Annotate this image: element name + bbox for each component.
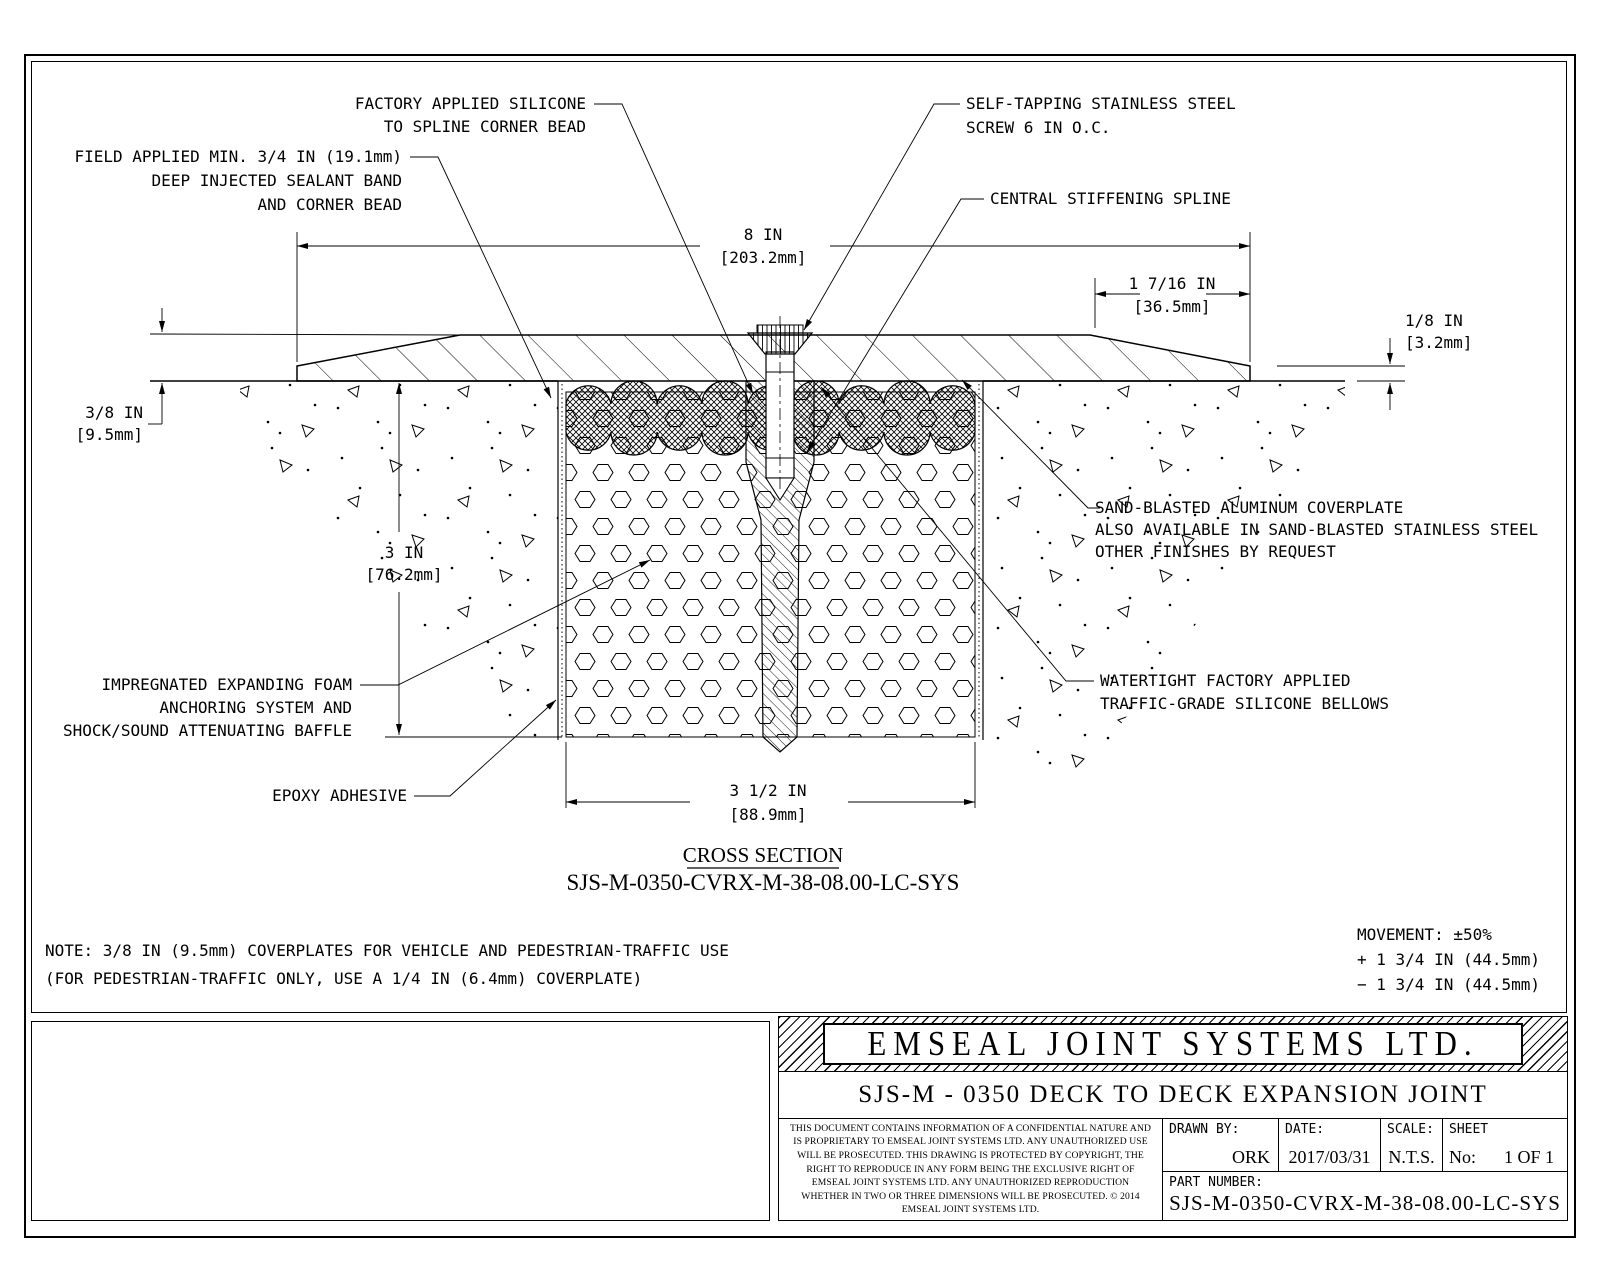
svg-text:SAND-BLASTED ALUMINUM COVERPLA: SAND-BLASTED ALUMINUM COVERPLATE	[1095, 498, 1403, 517]
svg-text:CENTRAL STIFFENING SPLINE: CENTRAL STIFFENING SPLINE	[990, 189, 1231, 208]
drawing-title-row: SJS-M - 0350 DECK TO DECK EXPANSION JOIN…	[778, 1072, 1568, 1119]
svg-text:SHOCK/SOUND ATTENUATING BAFFLE: SHOCK/SOUND ATTENUATING BAFFLE	[63, 721, 352, 740]
callout-screw: SELF-TAPPING STAINLESS STEEL SCREW 6 IN …	[966, 94, 1236, 137]
callout-spline: CENTRAL STIFFENING SPLINE	[990, 189, 1231, 208]
scale-value: N.T.S.	[1381, 1147, 1442, 1168]
sheet-no-label: No:	[1449, 1147, 1476, 1168]
confidentiality-cell: THIS DOCUMENT CONTAINS INFORMATION OF A …	[779, 1119, 1163, 1220]
company-name: EMSEAL JOINT SYSTEMS LTD.	[867, 1024, 1478, 1064]
revision-box	[31, 1021, 770, 1221]
title-block-fields: DRAWN BY: ORK DATE: 2017/03/31 SCALE: N.…	[1163, 1119, 1567, 1220]
callout-factory-silicone: FACTORY APPLIED SILICONE TO SPLINE CORNE…	[355, 94, 586, 136]
company-banner: EMSEAL JOINT SYSTEMS LTD.	[778, 1016, 1568, 1072]
callout-field-sealant: FIELD APPLIED MIN. 3/4 IN (19.1mm) DEEP …	[74, 147, 402, 214]
dimension-joint-width: 3 1/2 IN [88.9mm]	[566, 742, 975, 824]
scale-label: SCALE:	[1387, 1122, 1436, 1137]
svg-text:ALSO AVAILABLE IN SAND-BLASTED: ALSO AVAILABLE IN SAND-BLASTED STAINLESS…	[1095, 520, 1538, 539]
svg-text:FACTORY APPLIED SILICONE: FACTORY APPLIED SILICONE	[355, 94, 586, 113]
svg-text:EPOXY ADHESIVE: EPOXY ADHESIVE	[272, 786, 407, 805]
svg-text:SCREW 6 IN O.C.: SCREW 6 IN O.C.	[966, 118, 1111, 137]
title-block: EMSEAL JOINT SYSTEMS LTD. SJS-M - 0350 D…	[778, 1016, 1568, 1221]
callout-epoxy: EPOXY ADHESIVE	[272, 786, 407, 805]
svg-text:[36.5mm]: [36.5mm]	[1133, 297, 1210, 316]
svg-text:+ 1 3/4 IN (44.5mm): + 1 3/4 IN (44.5mm)	[1357, 950, 1540, 969]
svg-text:− 1 3/4 IN (44.5mm): − 1 3/4 IN (44.5mm)	[1357, 975, 1540, 994]
title-block-grid: THIS DOCUMENT CONTAINS INFORMATION OF A …	[778, 1119, 1568, 1221]
svg-text:[88.9mm]: [88.9mm]	[729, 805, 806, 824]
svg-text:[76.2mm]: [76.2mm]	[365, 565, 442, 584]
date-label: DATE:	[1285, 1122, 1374, 1137]
meta-row: DRAWN BY: ORK DATE: 2017/03/31 SCALE: N.…	[1163, 1119, 1567, 1172]
svg-text:3/8 IN: 3/8 IN	[85, 403, 143, 422]
svg-text:[3.2mm]: [3.2mm]	[1405, 333, 1472, 352]
drawn-by-cell: DRAWN BY: ORK	[1163, 1119, 1279, 1171]
cross-section-drawing: 8 IN [203.2mm] 1 7/16 IN [36.5mm] 1/8 IN…	[0, 0, 1600, 1015]
callout-coverplate: SAND-BLASTED ALUMINUM COVERPLATE ALSO AV…	[1095, 498, 1538, 561]
svg-text:CROSS SECTION: CROSS SECTION	[683, 843, 843, 867]
sheet-number-row: No: 1 OF 1	[1449, 1137, 1561, 1168]
svg-text:8 IN: 8 IN	[744, 225, 783, 244]
svg-text:FIELD APPLIED MIN. 3/4 IN (19.: FIELD APPLIED MIN. 3/4 IN (19.1mm)	[74, 147, 402, 166]
svg-text:[9.5mm]: [9.5mm]	[76, 425, 143, 444]
callout-foam: IMPREGNATED EXPANDING FOAM ANCHORING SYS…	[63, 675, 352, 740]
part-number-value: SJS-M-0350-CVRX-M-38-08.00-LC-SYS	[1163, 1191, 1567, 1216]
scale-cell: SCALE: N.T.S.	[1381, 1119, 1443, 1171]
company-banner-inner: EMSEAL JOINT SYSTEMS LTD.	[823, 1023, 1523, 1065]
drawn-by-label: DRAWN BY:	[1169, 1122, 1272, 1137]
svg-text:ANCHORING SYSTEM AND: ANCHORING SYSTEM AND	[159, 698, 352, 717]
svg-text:TO SPLINE CORNER BEAD: TO SPLINE CORNER BEAD	[384, 117, 586, 136]
drawn-by-value: ORK	[1232, 1147, 1270, 1168]
svg-text:TRAFFIC-GRADE SILICONE BELLOWS: TRAFFIC-GRADE SILICONE BELLOWS	[1100, 694, 1389, 713]
svg-text:SELF-TAPPING STAINLESS STEEL: SELF-TAPPING STAINLESS STEEL	[966, 94, 1236, 113]
movement-text: MOVEMENT: ±50% + 1 3/4 IN (44.5mm) − 1 3…	[1357, 925, 1540, 994]
svg-text:OTHER FINISHES BY REQUEST: OTHER FINISHES BY REQUEST	[1095, 542, 1336, 561]
svg-text:(FOR PEDESTRIAN-TRAFFIC ONLY,: (FOR PEDESTRIAN-TRAFFIC ONLY, USE A 1/4 …	[45, 969, 642, 988]
part-number-cell: PART NUMBER: SJS-M-0350-CVRX-M-38-08.00-…	[1163, 1172, 1567, 1220]
svg-text:1 7/16 IN: 1 7/16 IN	[1129, 274, 1216, 293]
concrete-deck-right	[983, 381, 1345, 772]
svg-text:3 1/2 IN: 3 1/2 IN	[729, 781, 806, 800]
drawing-title: SJS-M - 0350 DECK TO DECK EXPANSION JOIN…	[858, 1081, 1488, 1109]
drawing-sheet: 8 IN [203.2mm] 1 7/16 IN [36.5mm] 1/8 IN…	[0, 0, 1600, 1280]
svg-text:3 IN: 3 IN	[385, 543, 424, 562]
svg-text:[203.2mm]: [203.2mm]	[720, 248, 807, 267]
confidentiality-text: THIS DOCUMENT CONTAINS INFORMATION OF A …	[789, 1122, 1152, 1217]
leader-screw	[804, 104, 960, 330]
svg-text:MOVEMENT: ±50%: MOVEMENT: ±50%	[1357, 925, 1492, 944]
dimension-taper-width: 1 7/16 IN [36.5mm]	[1095, 274, 1250, 328]
svg-text:NOTE: 3/8 IN (9.5mm) COVERPLAT: NOTE: 3/8 IN (9.5mm) COVERPLATES FOR VEH…	[45, 941, 729, 960]
svg-text:1/8 IN: 1/8 IN	[1405, 311, 1463, 330]
svg-text:IMPREGNATED EXPANDING FOAM: IMPREGNATED EXPANDING FOAM	[102, 675, 352, 694]
note-text: NOTE: 3/8 IN (9.5mm) COVERPLATES FOR VEH…	[45, 941, 729, 988]
section-code: SJS-M-0350-CVRX-M-38-08.00-LC-SYS	[567, 870, 960, 895]
date-cell: DATE: 2017/03/31	[1279, 1119, 1381, 1171]
section-title: CROSS SECTION SJS-M-0350-CVRX-M-38-08.00…	[567, 843, 960, 895]
part-number-label: PART NUMBER:	[1169, 1175, 1561, 1190]
svg-text:AND CORNER BEAD: AND CORNER BEAD	[258, 195, 403, 214]
svg-text:WATERTIGHT FACTORY APPLIED: WATERTIGHT FACTORY APPLIED	[1100, 671, 1350, 690]
date-value: 2017/03/31	[1279, 1147, 1380, 1168]
sheet-cell: SHEET No: 1 OF 1	[1443, 1119, 1567, 1171]
sheet-label: SHEET	[1449, 1122, 1561, 1137]
sheet-value: 1 OF 1	[1504, 1147, 1554, 1168]
svg-text:DEEP INJECTED SEALANT BAND: DEEP INJECTED SEALANT BAND	[152, 171, 402, 190]
